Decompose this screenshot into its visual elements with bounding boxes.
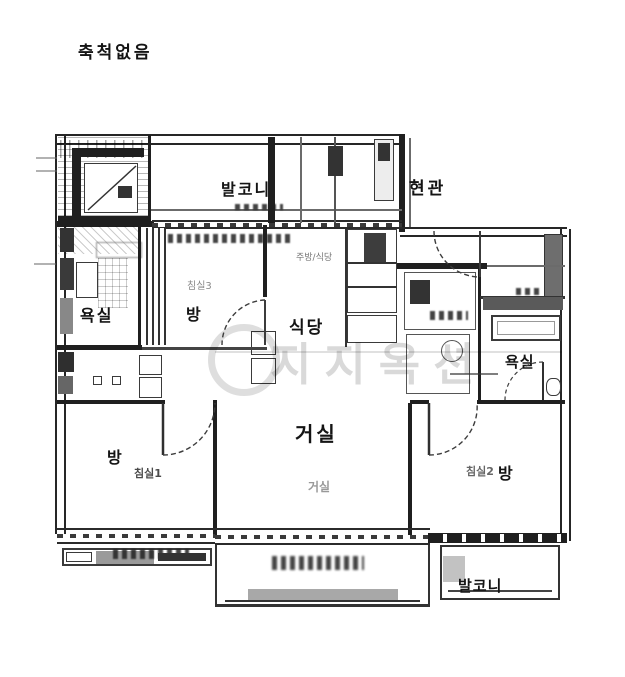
dining-sublabel: 주방/식당 [296,250,332,263]
wall-bath-left-right [138,225,141,347]
duct-stripes [146,228,166,345]
illegible-annotation [516,288,542,295]
wall-entry-divider [399,134,405,232]
bedroom-top-sublabel: 침실3 [187,277,212,292]
watermark-text: 지지옥션 [270,328,488,393]
room-label-bathroom-left: 욕실 [80,302,113,326]
scale-note: 축척없음 [78,38,153,63]
door-arc-entrance [434,231,480,277]
kitchen-shelf-2 [347,286,397,288]
stair-dark-rect [118,186,132,198]
bath-right-counter [483,297,563,310]
balcony-mullion-1 [300,137,302,223]
illegible-annotation [272,556,364,570]
stair-wall-v [72,150,81,223]
stair-bottom-band [58,216,150,224]
room-label-balcony-top: 발코니 [221,176,271,200]
bath-fixture-gray [60,298,73,334]
ledge-left-dark [158,553,206,561]
sink-left [76,262,98,298]
wall-entry-step [397,263,487,269]
window-living [215,528,430,545]
room-label-entrance: 현관 [409,174,446,199]
room-label-balcony-bottom: 발코니 [458,575,502,596]
door-arc-bedroom-right [429,403,477,455]
hall-closet-2 [139,377,162,398]
wall-bedroom-left-right [213,400,217,538]
window-bedroom-right [428,533,567,543]
illegible-annotation [168,234,290,243]
balcony-center-line [225,600,420,602]
wall-bedroom-left-top [57,400,165,404]
wall-bedroom-right-top-a [410,400,429,404]
balcony-dark-fixture [328,146,343,176]
wall-bedroom-right-top-b [477,400,565,404]
illegible-annotation [430,311,468,320]
kitchen-shelf-1 [347,262,397,264]
bedroom-left-sublabel: 침실1 [134,465,162,481]
bath-fixture-dark [60,258,74,290]
room-label-bathroom-right: 욕실 [505,351,535,372]
room-label-bedroom-left: 방 [107,444,122,468]
closet-dark [60,228,74,252]
bifold-door-left [93,376,102,385]
door-arc-bedroom-left [163,403,215,455]
wall-stair-right [148,135,151,225]
room-label-bedroom-right: 방 [498,460,513,484]
window-balcony-top [152,220,402,229]
illegible-annotation [235,204,283,210]
shower-tiles [98,258,128,308]
corridor-fixture-1 [58,352,74,372]
hall-closet-1 [139,355,162,375]
boiler-dark [410,280,430,304]
illegible-annotation [96,242,142,258]
stair-wall-h [72,148,144,157]
bifold-door-right [112,376,121,385]
room-label-living: 거실 [295,418,338,447]
toilet [546,378,561,396]
wall-corridor-top [57,345,142,350]
window-bedroom-left [57,528,215,544]
balcony-cabinet-dark [378,143,390,161]
corridor-fixture-2 [58,376,73,394]
living-sublabel: 거실 [308,478,330,495]
floorplan-canvas: 축척없음 발코니 현관 욕실 침실3 방 주방/식당 식당 [0,0,625,677]
entry-step-line [487,265,565,267]
wall-living-right [408,403,412,535]
wall-entrance-top [400,227,567,237]
room-label-bedroom-top: 방 [186,301,201,325]
ledge-left-panel [66,552,92,562]
bathtub-inner [497,321,555,335]
bedroom-right-sublabel: 침실2 [466,463,494,479]
kitchen-cabinet-dark [364,233,386,263]
